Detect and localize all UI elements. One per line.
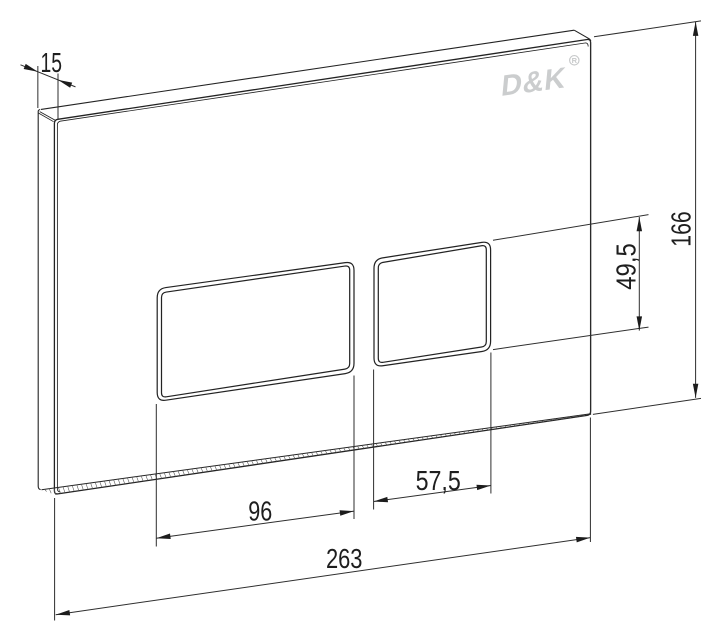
svg-text:166: 166 (665, 211, 696, 247)
svg-text:57,5: 57,5 (416, 465, 461, 496)
svg-text:15: 15 (41, 47, 63, 78)
svg-text:49,5: 49,5 (610, 243, 641, 290)
svg-text:96: 96 (248, 496, 272, 527)
svg-text:R: R (572, 56, 578, 65)
svg-text:263: 263 (326, 543, 363, 574)
